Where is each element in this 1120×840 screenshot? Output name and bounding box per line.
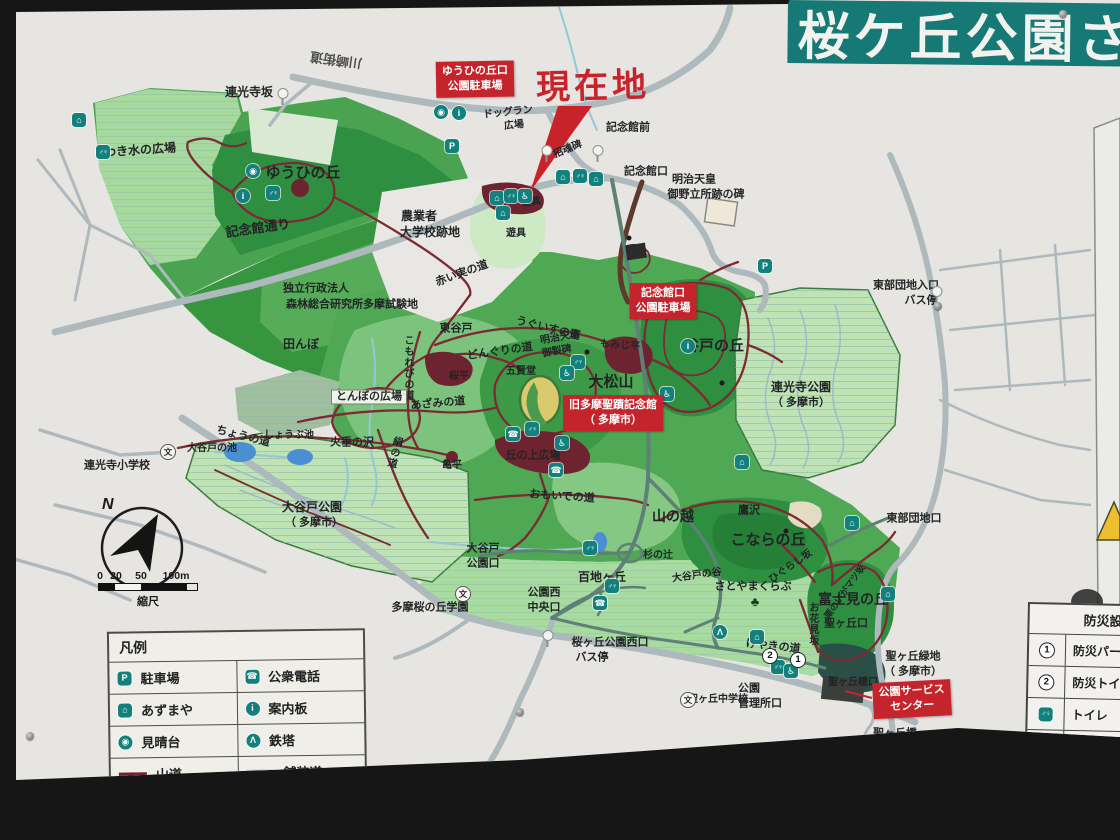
toilet-icon: ♂♀	[605, 579, 619, 593]
legend-row: ◉見晴台Λ鉄塔	[110, 723, 364, 759]
screw	[4, 518, 12, 526]
disaster-label: トイレ	[1064, 706, 1107, 724]
bus-stop-icon	[869, 746, 880, 757]
map-label: 大学校跡地	[400, 226, 460, 238]
phone-icon: ☎	[506, 427, 520, 441]
map-label: 明治天皇	[672, 175, 716, 186]
numbered-badge-2: 2	[1038, 674, 1054, 690]
disaster-facility-box: 防災設備 1防災パー2防災トイ♂♀トイレ♿障害者ト桜ヶ丘公	[1024, 602, 1120, 798]
disaster-row: 桜ヶ丘公	[1026, 762, 1120, 796]
map-label: お花見坂	[807, 602, 817, 646]
map-label: バス停	[905, 296, 938, 307]
red-sign-kinenkan-parking: 記念館口公園駐車場	[630, 283, 697, 319]
map-label: 公園西	[528, 588, 561, 599]
map-label: 東部団地入口	[873, 281, 939, 292]
azumaya-icon: ⌂	[556, 170, 570, 184]
monument-dot	[784, 529, 789, 534]
wheelchair-icon: ♿	[1038, 739, 1052, 753]
tower-icon: Λ	[246, 733, 260, 747]
legend-label: 舗装道	[283, 762, 322, 782]
legend-cell: ⌂あずまや	[110, 693, 237, 726]
toilet-icon: ♂♀	[525, 422, 539, 436]
legend-cell: 舗装道	[237, 755, 365, 788]
map-label: バス停	[875, 744, 908, 755]
photographed-park-sign: 桜ケ丘公園さ 現在地 川崎街道連光寺坂わき水の広場ゆうひの丘記念館通り独立行政法…	[0, 0, 1120, 840]
sign-board: 桜ケ丘公園さ 現在地 川崎街道連光寺坂わき水の広場ゆうひの丘記念館通り独立行政法…	[0, 0, 1120, 840]
screw	[4, 298, 12, 306]
legend-rows: P駐車場☎公衆電話⌂あずまやi案内板◉見晴台Λ鉄塔山道舗装道	[109, 659, 365, 790]
toilet-icon: ♂♀	[1039, 707, 1053, 721]
legend-cell: ◉見晴台	[110, 725, 237, 758]
numbered-point-2: 2	[762, 648, 778, 664]
toilet-icon: ♂♀	[504, 189, 518, 203]
azumaya-icon: ⌂	[118, 703, 132, 717]
azumaya-icon: ⌂	[589, 172, 603, 186]
info-icon: i	[245, 701, 259, 715]
map-label: とんぼの広場	[331, 390, 407, 405]
disaster-label: 桜ヶ丘公	[1063, 770, 1118, 788]
map-label: 聖ヶ丘橋口	[828, 678, 878, 688]
disaster-symbol-cell: ♿	[1027, 730, 1065, 762]
disaster-row: 1防災パー	[1029, 634, 1120, 669]
north-label: N	[102, 496, 114, 514]
parking-icon: P	[117, 671, 131, 685]
parking-icon: P	[445, 139, 459, 153]
phone-icon: ☎	[549, 463, 563, 477]
azumaya-icon: ⌂	[490, 191, 504, 205]
map-label: ゆうひの丘	[265, 166, 340, 181]
monument-dot	[720, 381, 725, 386]
disaster-facility-rows: 1防災パー2防災トイ♂♀トイレ♿障害者ト桜ヶ丘公	[1026, 634, 1120, 796]
scale-tick: 50	[135, 570, 147, 582]
map-label: （ 多摩市）	[285, 518, 343, 529]
map-label: 杉の辻	[643, 551, 673, 561]
parking-icon: P	[758, 259, 772, 273]
azumaya-icon: ⌂	[881, 587, 895, 601]
legend-cell: ☎公衆電話	[236, 659, 364, 692]
tower-icon: Λ	[713, 625, 727, 639]
info-icon: i	[452, 106, 466, 120]
map-label: 丘の上広場	[506, 451, 561, 462]
map-label: 桜ヶ丘公園西口	[572, 638, 649, 649]
map-label: 東谷戸	[440, 324, 473, 335]
screw	[26, 732, 34, 740]
map-label: しょうぶ池	[264, 431, 314, 441]
map-label: 連光寺坂	[225, 86, 273, 98]
legend-cell: i案内板	[236, 691, 364, 724]
map-label: 広場	[504, 120, 525, 132]
map-label: 記念館前	[606, 123, 650, 134]
disaster-symbol-cell: ♂♀	[1027, 698, 1065, 730]
toilet-icon: ♂♀	[573, 169, 587, 183]
park-area-swatch	[1031, 770, 1057, 786]
azumaya-icon: ⌂	[750, 630, 764, 644]
legend-cell: P駐車場	[109, 661, 236, 694]
legend-box: 凡例 P駐車場☎公衆電話⌂あずまやi案内板◉見晴台Λ鉄塔山道舗装道	[107, 628, 367, 792]
legend-label: 公衆電話	[268, 666, 320, 686]
azumaya-icon: ⌂	[845, 516, 859, 530]
map-label: 火垂の沢	[330, 438, 374, 449]
map-label: 大谷戸の池	[187, 444, 237, 454]
map-label: 山の越	[652, 509, 694, 523]
azumaya-icon: ⌂	[735, 455, 749, 469]
disaster-facility-title: 防災設備	[1029, 604, 1120, 637]
toilet-icon: ♂♀	[583, 541, 597, 555]
map-label: 多摩桜の丘学園	[392, 603, 469, 614]
disaster-label: 防災トイ	[1065, 674, 1120, 692]
map-label: 大谷戸	[467, 544, 500, 555]
bus-stop-icon	[542, 145, 553, 156]
bus-stop-icon	[932, 286, 943, 297]
viewpoint-icon: ◉	[246, 164, 260, 178]
azumaya-icon: ⌂	[496, 206, 510, 220]
bus-stop-icon	[543, 630, 554, 641]
legend-label: 鉄塔	[269, 730, 295, 749]
scale-tick: 100m	[163, 570, 190, 582]
phone-icon: ☎	[593, 596, 607, 610]
legend-label: 案内板	[268, 698, 307, 718]
legend-row: 山道舗装道	[111, 755, 365, 790]
scale-tick: 0	[97, 570, 103, 582]
disaster-row: ♂♀トイレ	[1027, 698, 1120, 733]
map-label: 東部団地口	[887, 514, 942, 525]
toilet-icon: ♂♀	[96, 145, 110, 159]
scale-ticks: 02050100m	[98, 570, 198, 582]
legend-label: 見晴台	[141, 732, 180, 752]
map-label: 鷹沢	[738, 506, 760, 517]
map-label: 五賢堂	[506, 367, 536, 377]
map-label: （ 多摩市）	[772, 398, 830, 409]
numbered-point-1: 1	[790, 652, 806, 668]
numbered-badge-1: 1	[1039, 642, 1055, 658]
map-label: 独立行政法人	[283, 284, 349, 295]
legend-label: 山道	[156, 764, 182, 783]
monument-dot	[585, 350, 590, 355]
disaster-row: ♿障害者ト	[1027, 730, 1120, 765]
scale-caption: 縮尺	[98, 593, 198, 609]
toilet-icon: ♂♀	[266, 186, 280, 200]
disaster-label: 防災パー	[1066, 642, 1120, 660]
screw	[6, 92, 14, 100]
screw	[934, 302, 942, 310]
viewpoint-icon: ◉	[434, 105, 448, 119]
map-label: バス停	[576, 653, 609, 664]
disaster-row: 2防災トイ	[1028, 666, 1120, 701]
legend-cell: Λ鉄塔	[237, 723, 365, 756]
legend-label: あずまや	[141, 700, 193, 720]
monument-dot	[627, 236, 632, 241]
map-label: 大谷戸公園	[282, 501, 342, 513]
paved-line-swatch	[246, 769, 274, 774]
map-label: 大松山	[588, 375, 633, 390]
scale-tick: 20	[110, 570, 122, 582]
legend-title: 凡例	[109, 630, 363, 663]
tree-icon: ♣	[748, 594, 762, 608]
screw	[1059, 10, 1067, 18]
map-label: 管理所口	[738, 699, 782, 710]
scale-bar: 02050100m 縮尺	[98, 570, 198, 609]
info-icon: i	[681, 339, 695, 353]
disaster-symbol-cell: 2	[1028, 666, 1066, 698]
adjacent-sign-panel	[1071, 118, 1120, 628]
map-label: 中央口	[528, 603, 561, 614]
red-sign-yuhi-parking: ゆうひの丘口公園駐車場	[436, 60, 515, 97]
wheelchair-icon: ♿	[555, 436, 569, 450]
phone-icon: ☎	[245, 669, 259, 683]
park-title-partial: さ	[1077, 0, 1120, 67]
map-label: 聖ヶ丘橋	[873, 729, 917, 740]
map-label: 聖ヶ丘緑地	[886, 652, 941, 663]
viewpoint-icon: ◉	[118, 735, 132, 749]
disaster-label: 障害者ト	[1064, 738, 1119, 756]
park-title: 桜ケ丘公園	[797, 0, 1078, 67]
map-label: こならの丘	[730, 533, 805, 548]
legend-row: ⌂あずまやi案内板	[110, 691, 364, 727]
map-label: 連光寺公園	[771, 381, 831, 393]
red-sign-kyu-tama-seiseki-kinenkan: 旧多摩聖蹟記念館（ 多摩市）	[563, 395, 663, 431]
info-icon: i	[236, 189, 250, 203]
map-label: 記念館口	[624, 167, 668, 178]
bus-stop-icon	[593, 145, 604, 156]
scale-bar-graphic	[98, 583, 198, 591]
wheelchair-icon: ♿	[518, 189, 532, 203]
school-icon: 文	[160, 444, 176, 460]
wheelchair-icon: ♿	[560, 366, 574, 380]
map-label: 連光寺小学校	[84, 461, 150, 472]
map-label: 田んぼ	[283, 338, 319, 350]
map-label: さとやまくらぶ	[715, 582, 792, 593]
map-label: 遊具	[506, 229, 526, 239]
school-icon: 文	[455, 586, 471, 602]
map-label: 御野立所跡の碑	[668, 190, 745, 201]
map-label: 亀平	[442, 461, 462, 471]
current-location-label: 現在地	[535, 57, 650, 109]
map-label: 桜平	[449, 372, 469, 382]
trail-line-swatch	[119, 772, 147, 776]
legend-row: P駐車場☎公衆電話	[109, 659, 363, 695]
azumaya-icon: ⌂	[72, 113, 86, 127]
screw	[516, 708, 524, 716]
disaster-symbol-cell	[1026, 762, 1064, 794]
map-label: 農業者	[401, 210, 437, 222]
legend-cell: 山道	[111, 757, 238, 790]
map-label: 公園口	[467, 559, 500, 570]
school-icon: 文	[680, 692, 696, 708]
legend-label: 駐車場	[140, 668, 179, 688]
bus-stop-icon	[278, 88, 289, 99]
sign-title-banner: 桜ケ丘公園さ	[787, 0, 1120, 67]
map-label: 公園	[738, 684, 760, 695]
red-sign-park-service-center: 公園サービスセンター	[872, 679, 952, 719]
disaster-symbol-cell: 1	[1029, 634, 1067, 666]
map-label: （ 多摩市）	[884, 667, 942, 678]
map-label: 森林総合研究所多摩試験地	[286, 300, 418, 311]
